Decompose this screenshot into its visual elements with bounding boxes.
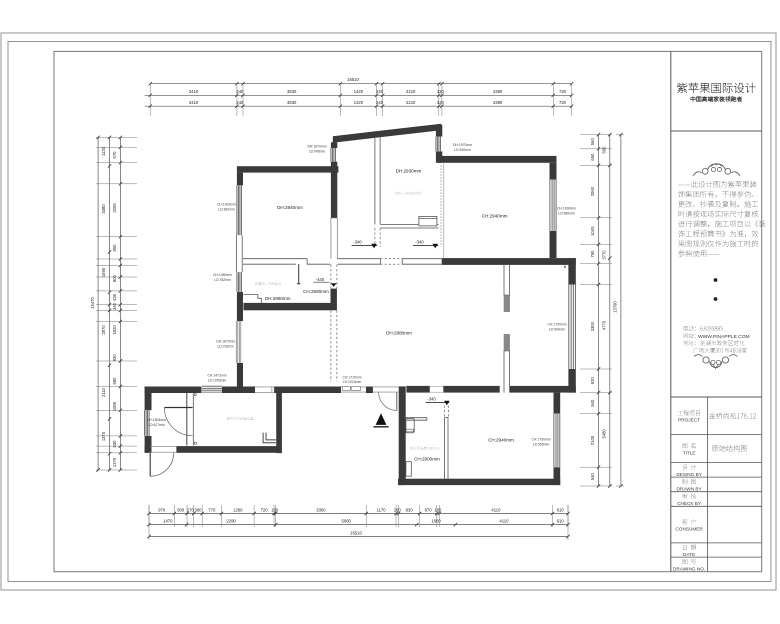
svg-text:DH:1870mm: DH:1870mm xyxy=(216,340,235,344)
svg-text:120: 120 xyxy=(437,100,445,105)
svg-text:1420: 1420 xyxy=(354,100,364,105)
svg-text:3830: 3830 xyxy=(287,89,297,94)
svg-text:PROJECT: PROJECT xyxy=(678,418,700,423)
svg-text:435: 435 xyxy=(112,293,117,301)
svg-text:680: 680 xyxy=(112,377,117,385)
svg-text:2100: 2100 xyxy=(590,435,595,445)
svg-text:3410: 3410 xyxy=(189,89,199,94)
svg-text:LD:555mm: LD:555mm xyxy=(533,442,550,446)
svg-text:DH:1870mm: DH:1870mm xyxy=(307,145,326,149)
svg-text:3830: 3830 xyxy=(287,100,297,105)
svg-text:-340: -340 xyxy=(353,240,362,245)
svg-text:CH:2900mm: CH:2900mm xyxy=(414,456,440,461)
svg-text:16510: 16510 xyxy=(347,77,359,82)
svg-text:1085: 1085 xyxy=(112,401,117,411)
svg-text:720: 720 xyxy=(559,89,567,94)
svg-text:4770: 4770 xyxy=(602,320,607,330)
svg-text:560: 560 xyxy=(602,146,607,154)
svg-text:CONSUMER: CONSUMER xyxy=(675,527,703,532)
svg-text:LD:980mm: LD:980mm xyxy=(558,211,575,215)
svg-text:DH:2880mm: DH:2880mm xyxy=(386,330,412,335)
svg-text:4380: 4380 xyxy=(493,100,503,105)
svg-text:DH:2980mm: DH:2980mm xyxy=(265,296,291,301)
svg-text:850: 850 xyxy=(112,244,117,252)
svg-text:930: 930 xyxy=(112,354,117,362)
svg-text:540: 540 xyxy=(590,472,595,480)
svg-text:2110: 2110 xyxy=(101,387,106,397)
svg-text:1820: 1820 xyxy=(112,325,117,335)
svg-text:620: 620 xyxy=(590,377,595,385)
svg-text:3300: 3300 xyxy=(590,321,595,331)
svg-text:CH:2580mm: CH:2580mm xyxy=(303,289,329,294)
svg-text:4110: 4110 xyxy=(499,518,509,523)
svg-text:1045: 1045 xyxy=(590,226,595,236)
svg-text:1590: 1590 xyxy=(101,267,106,277)
svg-text:840: 840 xyxy=(590,399,595,407)
svg-text:5060: 5060 xyxy=(342,518,352,523)
svg-text:500: 500 xyxy=(177,507,185,512)
svg-text:LD:782mm: LD:782mm xyxy=(214,278,231,282)
svg-text:4380: 4380 xyxy=(493,89,503,94)
svg-text:4110: 4110 xyxy=(491,507,501,512)
svg-text:DATE: DATE xyxy=(683,552,695,557)
svg-text:DH:1570mm: DH:1570mm xyxy=(453,143,472,147)
svg-text:LD:1053mm: LD:1053mm xyxy=(208,378,227,382)
svg-text:530: 530 xyxy=(112,440,117,448)
svg-text:100: 100 xyxy=(271,507,279,512)
svg-text:5480: 5480 xyxy=(602,428,607,438)
svg-text:760: 760 xyxy=(590,250,595,258)
svg-text:CH:2940mm: CH:2940mm xyxy=(488,438,514,443)
svg-text:340: 340 xyxy=(112,302,117,310)
svg-text:CH:1402mm: CH:1402mm xyxy=(217,203,236,207)
svg-text:240: 240 xyxy=(236,100,244,105)
svg-text:2060: 2060 xyxy=(590,186,595,196)
svg-text:610: 610 xyxy=(557,507,565,512)
svg-text:WWW.PINAPPLE.COM: WWW.PINAPPLE.COM xyxy=(698,334,750,340)
svg-text:DH:1804mm: DH:1804mm xyxy=(147,418,166,422)
svg-text:16510: 16510 xyxy=(350,530,362,535)
svg-text:770: 770 xyxy=(208,507,216,512)
svg-text:3770: 3770 xyxy=(602,250,607,260)
svg-text:13790: 13790 xyxy=(612,301,617,313)
svg-text:1370: 1370 xyxy=(112,457,117,467)
svg-text:380: 380 xyxy=(195,507,203,512)
svg-text:1280: 1280 xyxy=(233,507,243,512)
svg-text:DH:2930mm: DH:2930mm xyxy=(396,168,422,173)
svg-text:-440: -440 xyxy=(316,277,325,282)
svg-text:100: 100 xyxy=(434,507,442,512)
svg-text:CH:1900mm: CH:1900mm xyxy=(557,207,576,211)
svg-text:CH:1473mm: CH:1473mm xyxy=(207,374,226,378)
svg-text:LD:382mm: LD:382mm xyxy=(218,207,235,211)
svg-text:LD:1016mm: LD:1016mm xyxy=(343,380,362,384)
svg-text:LD:762mm: LD:762mm xyxy=(218,344,235,348)
svg-text:240: 240 xyxy=(236,89,244,94)
svg-text:610: 610 xyxy=(557,518,565,523)
svg-text:CH:1700mm: CH:1700mm xyxy=(531,438,550,442)
svg-text:1420: 1420 xyxy=(354,89,364,94)
svg-text:LD:500mm: LD:500mm xyxy=(549,327,566,331)
svg-text:-340: -340 xyxy=(427,397,436,402)
svg-text:670: 670 xyxy=(425,507,433,512)
svg-text:560: 560 xyxy=(590,138,595,146)
svg-text:2055: 2055 xyxy=(112,203,117,213)
svg-text:270: 270 xyxy=(187,507,195,512)
svg-text:CH:1700mm: CH:1700mm xyxy=(547,323,566,327)
svg-text:CH:1480mm: CH:1480mm xyxy=(213,273,232,277)
svg-text:-340: -340 xyxy=(415,240,424,245)
svg-text:DH:2940mm: DH:2940mm xyxy=(277,205,303,210)
svg-text:3410: 3410 xyxy=(189,100,199,105)
svg-text:LD:627mm: LD:627mm xyxy=(148,423,165,427)
svg-text:3300: 3300 xyxy=(316,507,326,512)
svg-text:CH:2940mm: CH:2940mm xyxy=(482,213,508,218)
svg-text:570: 570 xyxy=(112,151,117,159)
svg-text:2290: 2290 xyxy=(226,518,236,523)
svg-text:1120: 1120 xyxy=(101,146,106,156)
svg-text:TITLE: TITLE xyxy=(683,450,696,455)
svg-text:1170: 1170 xyxy=(377,507,387,512)
svg-text:1470: 1470 xyxy=(163,518,173,523)
svg-text:240: 240 xyxy=(376,100,384,105)
svg-text:CH:1715mm: CH:1715mm xyxy=(342,375,361,379)
svg-text:DRAWN BY: DRAWN BY xyxy=(677,486,703,491)
svg-text:15470: 15470 xyxy=(90,297,95,309)
svg-text:DRAWING NO.: DRAWING NO. xyxy=(673,566,705,571)
svg-text:830: 830 xyxy=(406,507,414,512)
svg-text:LD:945mm: LD:945mm xyxy=(309,149,326,153)
svg-text:720: 720 xyxy=(261,507,269,512)
svg-text:120: 120 xyxy=(437,89,445,94)
svg-text:3380: 3380 xyxy=(101,204,106,214)
svg-text:2870: 2870 xyxy=(101,325,106,335)
svg-text:2210: 2210 xyxy=(406,100,416,105)
svg-text:DESING BY: DESING BY xyxy=(676,472,702,477)
svg-text:800: 800 xyxy=(112,274,117,282)
svg-text:1600: 1600 xyxy=(431,518,441,523)
svg-text:650: 650 xyxy=(590,153,595,161)
svg-text:CHECK BY: CHECK BY xyxy=(677,501,702,506)
svg-text:1370: 1370 xyxy=(101,431,106,441)
svg-text:240: 240 xyxy=(376,89,384,94)
svg-text:720: 720 xyxy=(559,100,567,105)
svg-text:LD:940mm: LD:940mm xyxy=(454,148,471,152)
svg-text:100: 100 xyxy=(394,507,402,512)
svg-text:2210: 2210 xyxy=(406,89,416,94)
svg-text:970: 970 xyxy=(158,507,166,512)
